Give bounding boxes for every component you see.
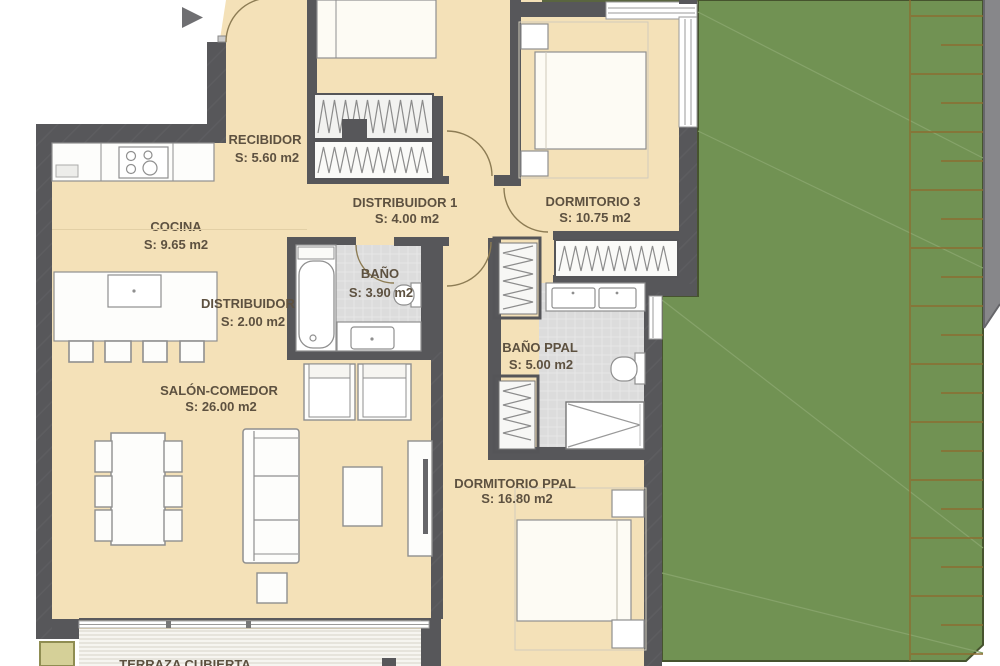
svg-text:S: 5.00 m2: S: 5.00 m2: [509, 357, 573, 372]
svg-text:SALÓN-COMEDOR: SALÓN-COMEDOR: [160, 383, 278, 398]
svg-text:RECIBIDOR: RECIBIDOR: [229, 132, 303, 147]
svg-text:BAÑO PPAL: BAÑO PPAL: [502, 340, 578, 355]
svg-text:S: 4.00 m2: S: 4.00 m2: [375, 211, 439, 226]
svg-text:S: 9.65 m2: S: 9.65 m2: [144, 237, 208, 252]
svg-text:TERRAZA CUBIERTA: TERRAZA CUBIERTA: [119, 657, 251, 666]
svg-text:S: 5.60 m2: S: 5.60 m2: [235, 150, 299, 165]
svg-text:S: 16.80 m2: S: 16.80 m2: [481, 491, 553, 506]
svg-text:COCINA: COCINA: [150, 219, 202, 234]
svg-text:S: 2.00 m2: S: 2.00 m2: [221, 314, 285, 329]
svg-text:DORMITORIO PPAL: DORMITORIO PPAL: [454, 476, 576, 491]
svg-text:S: 26.00 m2: S: 26.00 m2: [185, 399, 257, 414]
svg-text:DISTRIBUIDOR: DISTRIBUIDOR: [201, 296, 296, 311]
svg-text:S: 3.90 m2: S: 3.90 m2: [349, 285, 413, 300]
svg-text:BAÑO: BAÑO: [361, 266, 399, 281]
svg-text:S: 10.75 m2: S: 10.75 m2: [559, 210, 631, 225]
svg-text:DISTRIBUIDOR 1: DISTRIBUIDOR 1: [353, 195, 458, 210]
svg-text:DORMITORIO 3: DORMITORIO 3: [545, 194, 640, 209]
